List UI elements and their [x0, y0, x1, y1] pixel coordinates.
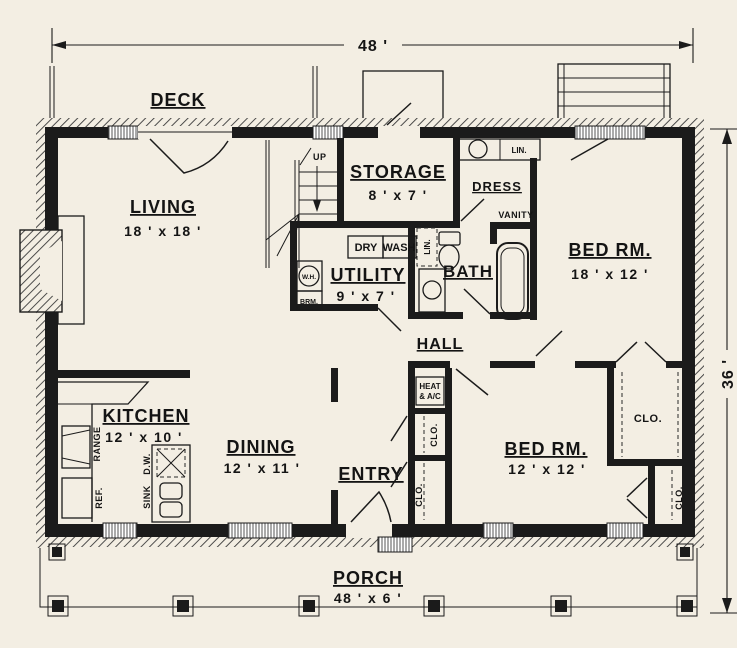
back-door-opening — [378, 126, 420, 139]
window — [108, 126, 138, 139]
floor-plan-drawing: 48 ' 36 ' DECK — [0, 0, 737, 648]
wall-right — [682, 127, 695, 537]
bath-label: BATH — [443, 262, 493, 281]
dining-size: 12 ' x 11 ' — [224, 460, 301, 476]
bedroom1-size: 18 ' x 12 ' — [571, 266, 649, 282]
vanity-label: VANITY — [498, 210, 533, 220]
storage-label: STORAGE — [350, 162, 446, 182]
living-size: 18 ' x 18 ' — [124, 223, 202, 239]
porch-label: PORCH — [333, 568, 403, 588]
wall-left — [45, 127, 58, 537]
dimension-width-label: 48 ' — [358, 38, 388, 55]
stairs-up-label: UP — [313, 152, 327, 162]
deck-label: DECK — [150, 90, 205, 110]
dimension-depth-label: 36 ' — [720, 359, 737, 389]
heat-label-line1: HEAT — [419, 382, 440, 391]
range-label: RANGE — [92, 426, 102, 461]
hall-label: HALL — [417, 336, 464, 353]
kitchen-size: 12 ' x 10 ' — [105, 429, 183, 445]
storage-size: 8 ' x 7 ' — [368, 187, 427, 203]
kitchen-label: KITCHEN — [103, 406, 190, 426]
sliding-door — [575, 126, 645, 139]
dress-label: DRESS — [472, 179, 522, 194]
floor-plan-sheet: 48 ' 36 ' DECK — [0, 0, 737, 648]
window — [483, 523, 513, 538]
heat-label-line2: & A/C — [419, 392, 441, 401]
sink-label: SINK — [142, 485, 152, 509]
porch-size: 48 ' x 6 ' — [334, 590, 402, 606]
dishwasher-label: D.W. — [142, 453, 152, 475]
linen-top-label: LIN. — [511, 146, 526, 155]
bedroom2-label: BED RM. — [505, 439, 588, 459]
window — [228, 523, 292, 538]
closet-hall-upper-label: CLO. — [429, 423, 439, 447]
window — [103, 523, 137, 538]
closet-hall-lower-label: CLO. — [414, 483, 424, 507]
linen-bath-label: LIN. — [423, 239, 432, 254]
water-heater-label: W.H. — [302, 274, 316, 281]
utility-label: UTILITY — [331, 265, 406, 285]
front-steps — [378, 537, 412, 552]
utility-size: 9 ' x 7 ' — [336, 288, 395, 304]
bedroom1-label: BED RM. — [569, 240, 652, 260]
closet-bedroom1-label: CLO. — [634, 413, 662, 425]
living-label: LIVING — [130, 197, 196, 217]
front-door-opening — [346, 523, 392, 538]
dryer-label: DRY — [355, 242, 378, 254]
washer-label: WASH — [383, 242, 416, 254]
room-dining: DINING 12 ' x 11 ' — [224, 437, 301, 476]
bedroom2-size: 12 ' x 12 ' — [508, 461, 586, 477]
dining-label: DINING — [227, 437, 296, 457]
entry-label: ENTRY — [338, 464, 403, 484]
refrigerator-label: REF. — [94, 487, 104, 509]
broom-label: BRM. — [300, 299, 318, 306]
window — [607, 523, 643, 538]
closet-bedroom2-label: CLO. — [674, 486, 684, 510]
paper-background — [0, 0, 737, 648]
window — [313, 126, 343, 139]
